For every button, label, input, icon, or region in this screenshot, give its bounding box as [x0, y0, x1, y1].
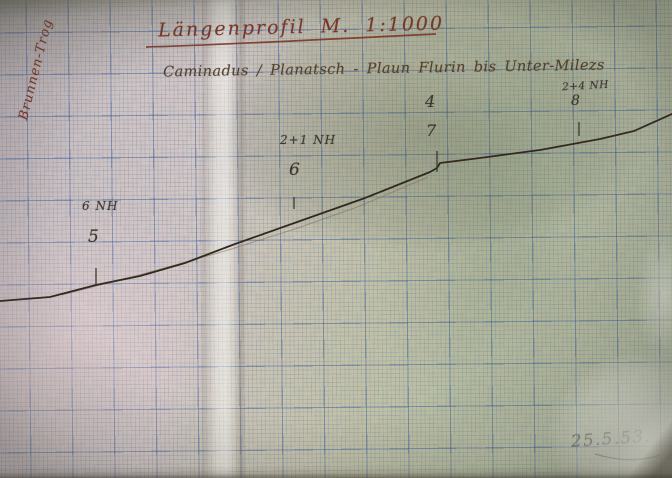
- station-3-upper-number: 4: [425, 92, 435, 111]
- station-1-nh-label: 6 NH: [82, 199, 118, 213]
- station-1-number: 5: [88, 227, 99, 247]
- station-4-number: 8: [571, 93, 580, 109]
- station-2-nh-label: 2+1 NH: [280, 133, 336, 147]
- station-2-number: 6: [289, 160, 300, 180]
- dark-corner-bottom-right: [628, 394, 672, 478]
- station-3-number: 7: [426, 121, 436, 140]
- graph-paper-sheet: Längenprofil M. 1:1000 Caminadus / Plana…: [0, 0, 672, 478]
- station-4-nh-label: 2+4 NH: [562, 79, 609, 93]
- photographed-profile-drawing: Längenprofil M. 1:1000 Caminadus / Plana…: [0, 0, 672, 478]
